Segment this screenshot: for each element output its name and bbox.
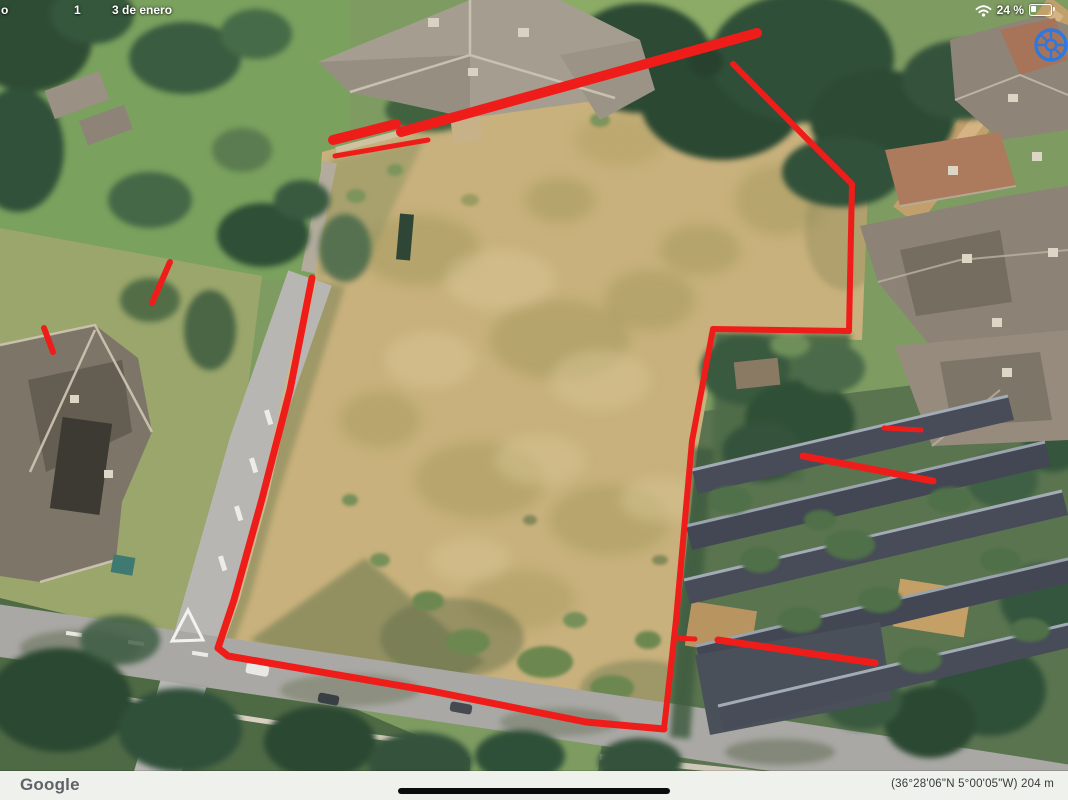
google-earth-screen: o 1 3 de enero 24 %: [0, 0, 1068, 800]
status-notification-fragment: 1: [74, 3, 81, 17]
status-time-fragment: o: [1, 3, 8, 17]
home-indicator[interactable]: [398, 788, 670, 794]
compass-icon[interactable]: [1032, 26, 1068, 64]
status-bar: o 1 3 de enero 24 %: [0, 0, 1068, 22]
bottom-bar: Google (36°28'06"N 5°00'05"W) 204 m: [0, 771, 1068, 800]
wifi-icon: [975, 4, 992, 17]
google-logo: Google: [20, 775, 80, 795]
battery-percent: 24 %: [997, 3, 1024, 17]
coordinates-display: (36°28'06"N 5°00'05"W) 204 m: [891, 778, 1054, 790]
satellite-map-view[interactable]: [0, 0, 1068, 771]
status-date: 3 de enero: [112, 3, 172, 17]
battery-icon: [1029, 4, 1052, 17]
